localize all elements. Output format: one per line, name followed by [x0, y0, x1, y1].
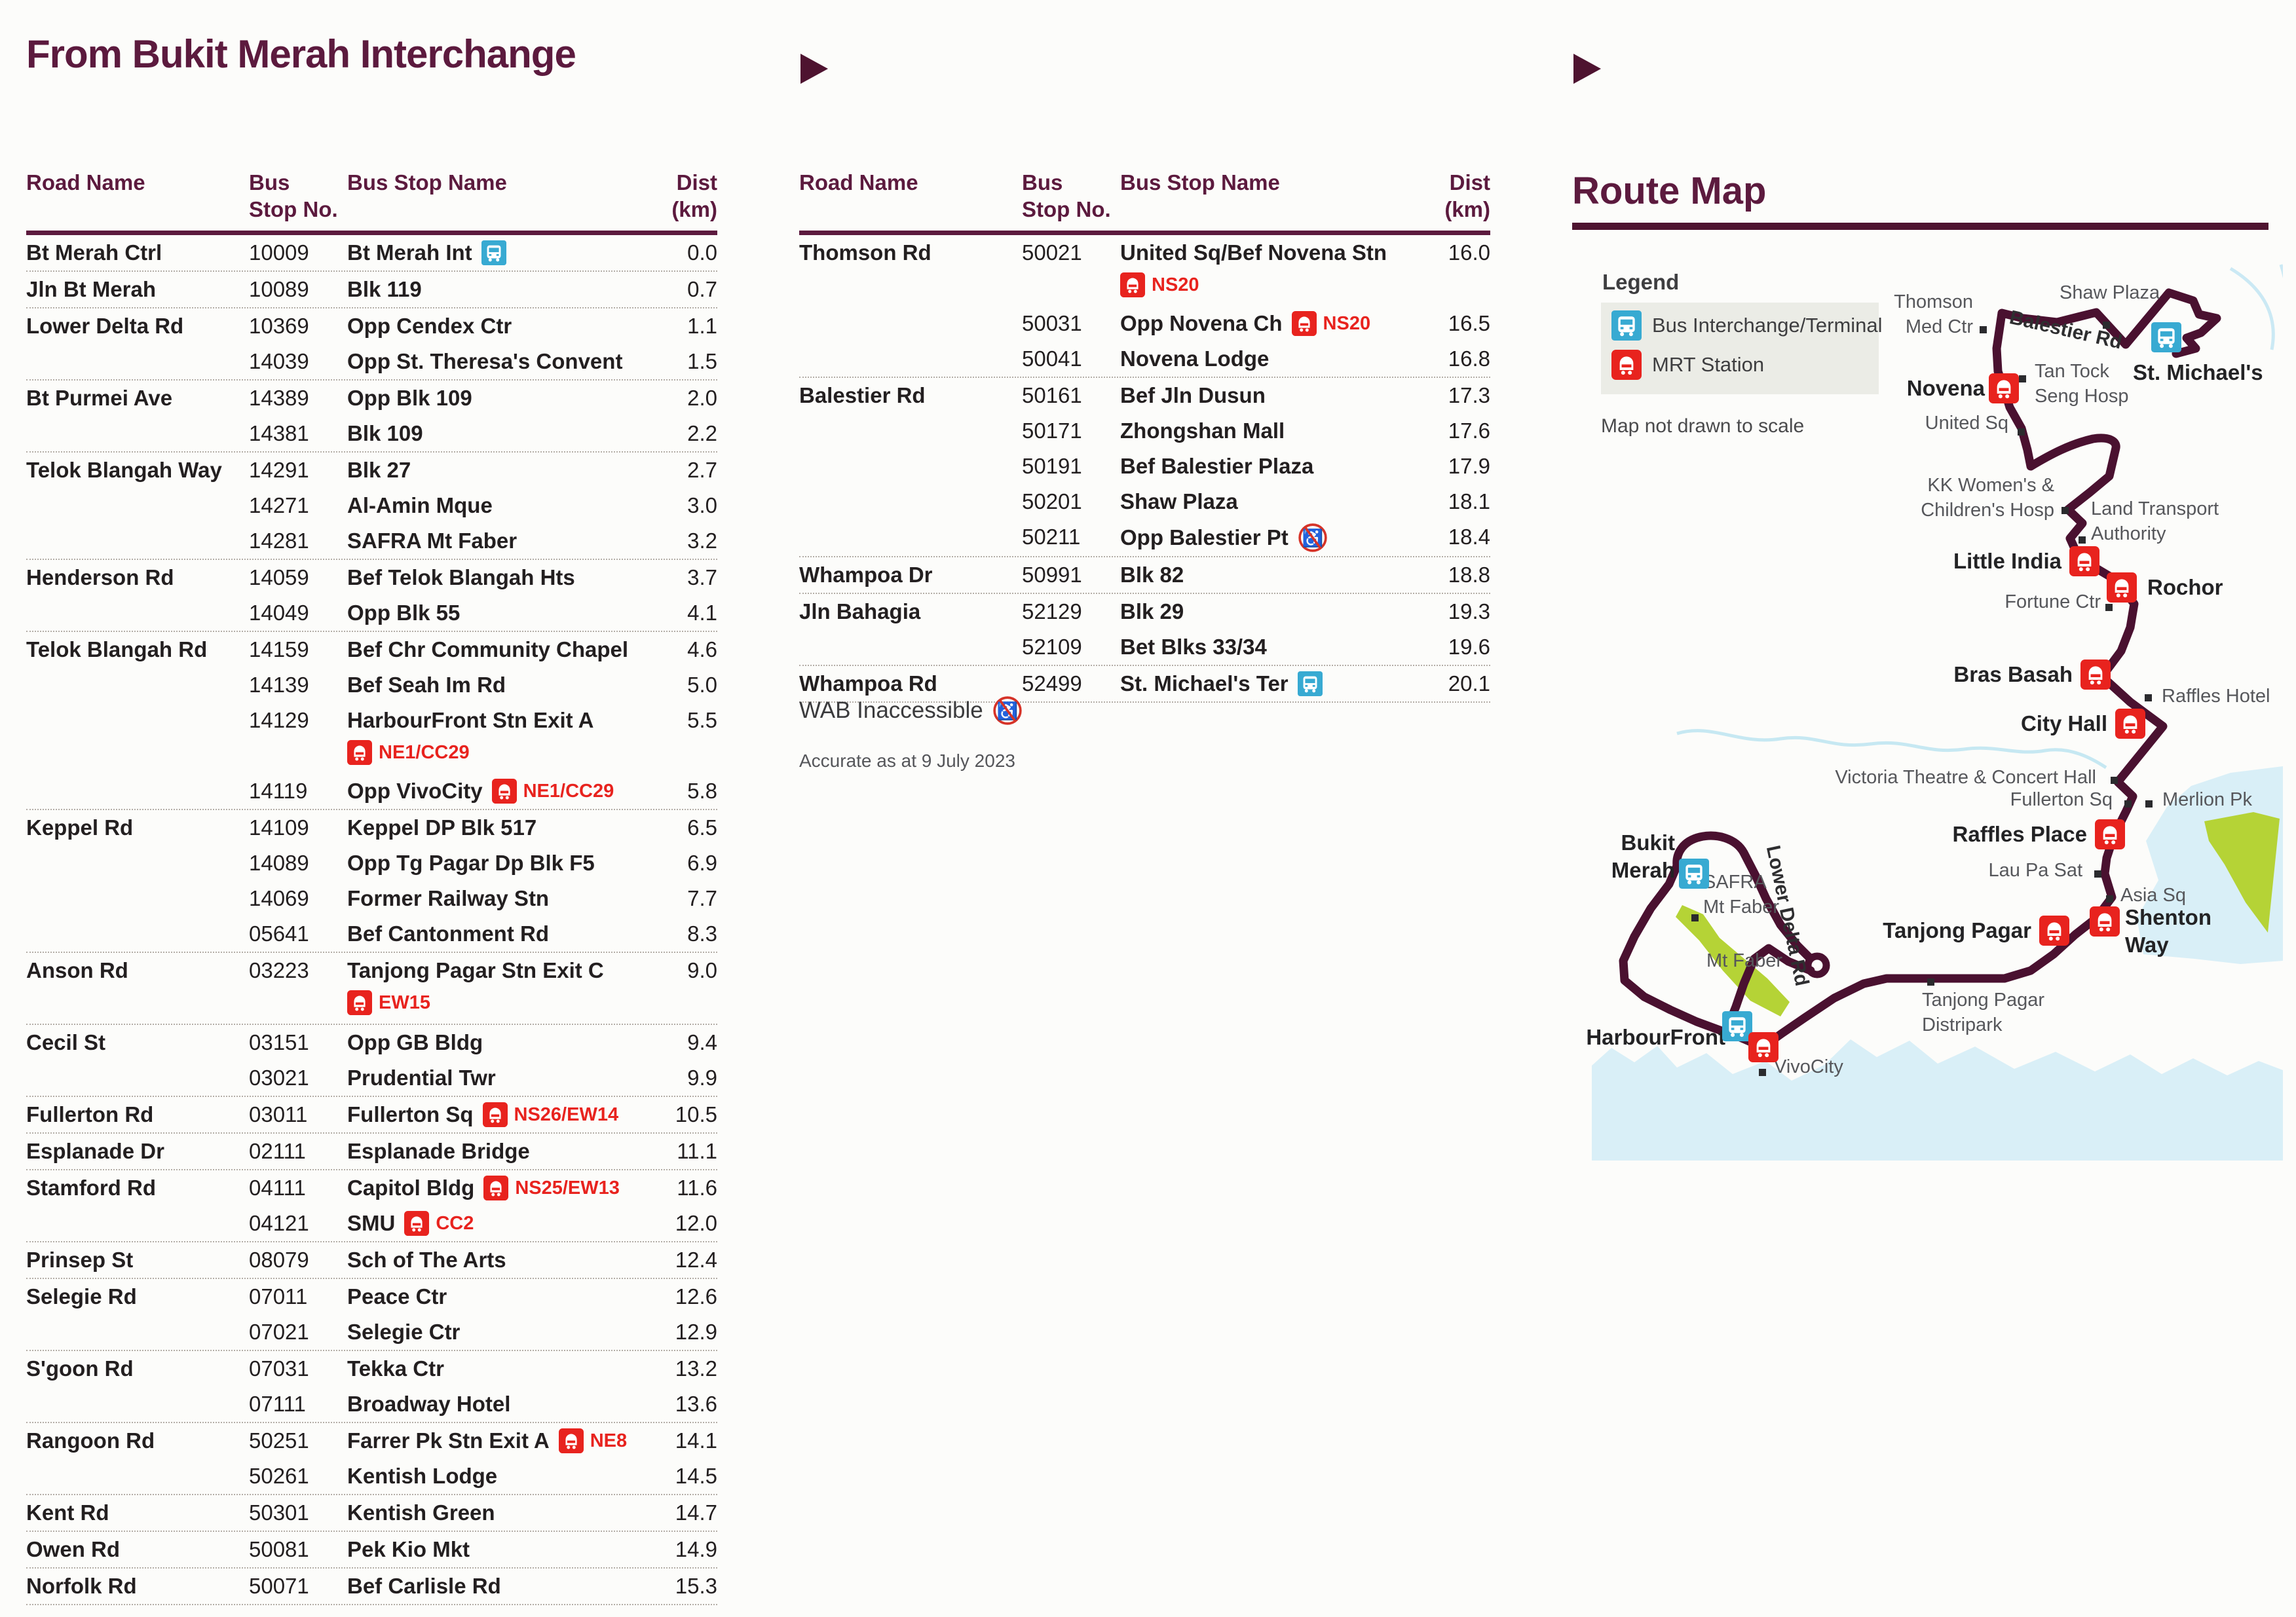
- bus-stop-name-cell: Opp Tg Pagar Dp Blk F5: [347, 849, 655, 878]
- bus-stop-name-cell: Blk 82: [1120, 561, 1428, 589]
- distance-cell: 10.5: [655, 1100, 717, 1129]
- bus-stop-no-cell: 52499: [1022, 669, 1120, 698]
- bus-stop-name-cell: Bef Carlisle Rd: [347, 1572, 655, 1601]
- label-line: Tan Tock: [2035, 359, 2129, 384]
- distance-cell: 15.3: [655, 1572, 717, 1601]
- bus-interchange-icon: [1298, 671, 1323, 696]
- bus-stop-name-cell: Blk 27: [347, 456, 655, 485]
- distance-cell: 5.8: [655, 777, 717, 806]
- bus-stop-name-cell: Bef Jln Dusun: [1120, 381, 1428, 410]
- label-line: Way: [2125, 931, 2211, 959]
- bus-stop-name: Opp Cendex Ctr: [347, 312, 512, 341]
- header-road-name: Road Name: [799, 169, 1022, 223]
- label-line: United Sq: [1925, 411, 2008, 436]
- bus-stop-no-cell: 14119: [249, 777, 347, 806]
- bus-stop-name-cell: Tekka Ctr: [347, 1354, 655, 1383]
- bus-stop-no-cell: 03021: [249, 1064, 347, 1092]
- table-row: Stamford Rd04111Capitol BldgNS25/EW1311.…: [26, 1170, 717, 1206]
- bus-stop-name: Shaw Plaza: [1120, 487, 1238, 516]
- bus-stop-name: Kentish Lodge: [347, 1462, 497, 1491]
- map-poi-label: Merlion Pk: [2162, 787, 2252, 812]
- bus-stop-no-cell: 04111: [249, 1174, 347, 1202]
- map-station-label: City Hall: [2021, 710, 2107, 737]
- bus-stop-name-cell: Novena Lodge: [1120, 344, 1428, 373]
- distance-cell: 14.5: [655, 1462, 717, 1491]
- bus-stop-name-cell: Capitol BldgNS25/EW13: [347, 1174, 655, 1202]
- bus-stop-name: Bt Merah Int: [347, 238, 472, 267]
- bus-stop-name: Broadway Hotel: [347, 1390, 510, 1419]
- bus-stop-no-cell: 14159: [249, 635, 347, 664]
- bus-stop-table-1: Road Name BusStop No. Bus Stop Name Dist…: [26, 169, 717, 1605]
- bus-stop-name: SAFRA Mt Faber: [347, 527, 517, 555]
- map-station-label: HarbourFront: [1586, 1024, 1725, 1051]
- distance-cell: 9.4: [655, 1028, 717, 1057]
- bus-stop-name-cell: HarbourFront Stn Exit ANE1/CC29: [347, 706, 655, 770]
- bus-stop-name-cell: Kentish Lodge: [347, 1462, 655, 1491]
- map-station-label: ShentonWay: [2125, 904, 2211, 959]
- bus-stop-name: Bef Balestier Plaza: [1120, 452, 1313, 481]
- bus-stop-no-cell: 14291: [249, 456, 347, 485]
- table-row: 50171Zhongshan Mall17.6: [799, 413, 1490, 449]
- road-name-cell: Bt Merah Ctrl: [26, 238, 249, 267]
- poi-marker: [2124, 800, 2132, 808]
- distance-cell: 9.0: [655, 956, 717, 985]
- bus-interchange-icon: [481, 240, 506, 265]
- bus-stop-table-2: Road Name BusStop No. Bus Stop Name Dist…: [799, 169, 1490, 703]
- road-name-cell: Esplanade Dr: [26, 1137, 249, 1166]
- label-line: Tanjong Pagar: [1922, 988, 2044, 1013]
- bus-stop-name-cell: Opp St. Theresa's Convent: [347, 347, 655, 376]
- distance-cell: 20.1: [1428, 669, 1490, 698]
- road-group: Selegie Rd07011Peace Ctr12.607021Selegie…: [26, 1279, 717, 1351]
- map-poi-label: Tan TockSeng Hosp: [2035, 359, 2129, 409]
- bus-stop-name-cell: Bef Seah Im Rd: [347, 671, 655, 699]
- bus-stop-no-cell: 07111: [249, 1390, 347, 1419]
- map-poi-label: Mt Faber: [1706, 948, 1782, 973]
- road-group: Bt Merah Ctrl10009Bt Merah Int0.0: [26, 235, 717, 272]
- table-row: 14381Blk 1092.2: [26, 416, 717, 451]
- poi-marker: [2111, 777, 2118, 784]
- table-row: Prinsep St08079Sch of The Arts12.4: [26, 1242, 717, 1278]
- distance-cell: 1.5: [655, 347, 717, 376]
- road-group: Bt Purmei Ave14389Opp Blk 1092.014381Blk…: [26, 381, 717, 453]
- road-name-cell: Cecil St: [26, 1028, 249, 1057]
- bus-stop-name-cell: Zhongshan Mall: [1120, 417, 1428, 445]
- mrt-badge: EW15: [347, 990, 430, 1015]
- bus-stop-name: Novena Lodge: [1120, 344, 1269, 373]
- mrt-station-icon: [2115, 709, 2145, 739]
- bus-stop-name-cell: Opp Blk 55: [347, 599, 655, 627]
- distance-cell: 5.0: [655, 671, 717, 699]
- bus-stop-name-cell: Bef Chr Community Chapel: [347, 635, 655, 664]
- bus-stop-no-cell: 14049: [249, 599, 347, 627]
- bus-stop-name-cell: Prudential Twr: [347, 1064, 655, 1092]
- bus-stop-name: Kentish Green: [347, 1498, 495, 1527]
- table-row: 14129HarbourFront Stn Exit ANE1/CC295.5: [26, 703, 717, 773]
- bus-stop-name: Bef Carlisle Rd: [347, 1572, 501, 1601]
- bus-stop-name: Bef Cantonment Rd: [347, 920, 549, 948]
- bus-stop-no-cell: 50211: [1022, 523, 1120, 551]
- road-name-cell: Telok Blangah Rd: [26, 635, 249, 664]
- accuracy-note: Accurate as at 9 July 2023: [799, 751, 1015, 771]
- bus-stop-name-cell: Esplanade Bridge: [347, 1137, 655, 1166]
- bus-stop-name: Bef Seah Im Rd: [347, 671, 506, 699]
- bus-stop-no-cell: 10089: [249, 275, 347, 304]
- continuation-arrow-icon: [800, 54, 828, 84]
- distance-cell: 16.0: [1428, 238, 1490, 267]
- wab-inaccessible-icon: ♿: [1298, 523, 1328, 553]
- table-row: 50031Opp Novena ChNS2016.5: [799, 306, 1490, 341]
- bus-stop-no-cell: 50021: [1022, 238, 1120, 267]
- header-bus-stop-name: Bus Stop Name: [347, 169, 655, 223]
- distance-cell: 14.9: [655, 1535, 717, 1564]
- label-line: Distripark: [1922, 1013, 2044, 1037]
- mrt-line-code: NE1/CC29: [379, 740, 470, 765]
- label-line: HarbourFront: [1586, 1024, 1725, 1051]
- poi-marker: [2106, 895, 2113, 902]
- poi-marker: [1691, 914, 1699, 921]
- road-name-cell: Henderson Rd: [26, 563, 249, 592]
- label-line: Fortune Ctr: [2004, 589, 2101, 614]
- label-line: City Hall: [2021, 710, 2107, 737]
- bus-stop-name: Prudential Twr: [347, 1064, 496, 1092]
- header-bus-stop-name: Bus Stop Name: [1120, 169, 1428, 223]
- distance-cell: 13.2: [655, 1354, 717, 1383]
- label-line: VivoCity: [1774, 1054, 1843, 1079]
- bus-stop-no-cell: 14059: [249, 563, 347, 592]
- page-title: From Bukit Merah Interchange: [26, 31, 576, 77]
- bus-stop-name-cell: Bef Balestier Plaza: [1120, 452, 1428, 481]
- distance-cell: 18.8: [1428, 561, 1490, 589]
- bus-interchange-icon: [2151, 322, 2181, 352]
- poi-marker: [2019, 375, 2026, 382]
- label-line: Merlion Pk: [2162, 787, 2252, 812]
- table-row: Balestier Rd50161Bef Jln Dusun17.3: [799, 378, 1490, 413]
- mrt-station-icon: [483, 1176, 508, 1200]
- distance-cell: 9.9: [655, 1064, 717, 1092]
- mrt-station-icon: [2080, 660, 2111, 690]
- header-dist: Dist(km): [655, 169, 717, 223]
- bus-stop-no-cell: 14039: [249, 347, 347, 376]
- badge-line: NE1/CC29: [347, 736, 646, 769]
- distance-cell: 2.7: [655, 456, 717, 485]
- bus-stop-no-cell: 02111: [249, 1137, 347, 1166]
- distance-cell: 19.6: [1428, 633, 1490, 661]
- table-row: Henderson Rd14059Bef Telok Blangah Hts3.…: [26, 560, 717, 595]
- map-station-label: St. Michael's: [2133, 359, 2263, 386]
- table-row: 14089Opp Tg Pagar Dp Blk F56.9: [26, 846, 717, 881]
- mrt-station-icon: [347, 990, 372, 1015]
- bus-stop-name-cell: Former Railway Stn: [347, 884, 655, 913]
- bus-stop-name: Peace Ctr: [347, 1282, 447, 1311]
- road-group: Keppel Rd14109Keppel DP Blk 5176.514089O…: [26, 810, 717, 953]
- bus-stop-name: Blk 27: [347, 456, 411, 485]
- distance-cell: 11.1: [655, 1137, 717, 1166]
- label-line: Children's Hosp: [1921, 498, 2054, 523]
- distance-cell: 12.0: [655, 1209, 717, 1238]
- bus-stop-name-cell: Keppel DP Blk 517: [347, 813, 655, 842]
- bus-stop-name-cell: Shaw Plaza: [1120, 487, 1428, 516]
- mrt-badge: NS26/EW14: [483, 1102, 619, 1127]
- bus-stop-name-cell: Blk 29: [1120, 597, 1428, 626]
- distance-cell: 4.6: [655, 635, 717, 664]
- table-row: Norfolk Rd50071Bef Carlisle Rd15.3: [26, 1569, 717, 1604]
- continuation-arrow-icon: [1573, 54, 1601, 84]
- mrt-station-icon: [2090, 906, 2120, 937]
- map-station-label: Raffles Place: [1953, 821, 2087, 848]
- label-line: Fullerton Sq: [2010, 787, 2113, 812]
- road-name-cell: Thomson Rd: [799, 238, 1022, 267]
- distance-cell: 0.0: [655, 238, 717, 267]
- table-row: Bt Merah Ctrl10009Bt Merah Int0.0: [26, 235, 717, 270]
- road-group: Kent Rd50301Kentish Green14.7: [26, 1495, 717, 1532]
- bus-stop-no-cell: 10369: [249, 312, 347, 341]
- label-line: KK Women's &: [1921, 473, 2054, 498]
- table-row: Fullerton Rd03011Fullerton SqNS26/EW1410…: [26, 1097, 717, 1132]
- road-group: Lower Delta Rd10369Opp Cendex Ctr1.11403…: [26, 308, 717, 381]
- mrt-badge: NS25/EW13: [483, 1176, 620, 1200]
- map-station-label: Bras Basah: [1953, 661, 2073, 688]
- bus-stop-name: Selegie Ctr: [347, 1318, 460, 1347]
- table-row: 14069Former Railway Stn7.7: [26, 881, 717, 916]
- mrt-badge: NE8: [559, 1428, 627, 1453]
- map-poi-label: ThomsonMed Ctr: [1894, 289, 1973, 339]
- bus-stop-name-cell: Kentish Green: [347, 1498, 655, 1527]
- bus-stop-no-cell: 50261: [249, 1462, 347, 1491]
- mrt-station-icon: [559, 1428, 584, 1453]
- table-row: Whampoa Dr50991Blk 8218.8: [799, 557, 1490, 593]
- road-group: Norfolk Rd50071Bef Carlisle Rd15.3: [26, 1569, 717, 1605]
- distance-cell: 17.6: [1428, 417, 1490, 445]
- mrt-badge: NS20: [1292, 311, 1371, 336]
- bus-stop-no-cell: 03151: [249, 1028, 347, 1057]
- road-group: Stamford Rd04111Capitol BldgNS25/EW1311.…: [26, 1170, 717, 1242]
- bus-stop-name: Tanjong Pagar Stn Exit C: [347, 956, 604, 985]
- distance-cell: 12.6: [655, 1282, 717, 1311]
- map-station-label: Tanjong Pagar: [1883, 917, 2031, 944]
- road-name-cell: Anson Rd: [26, 956, 249, 985]
- bus-stop-no-cell: 03011: [249, 1100, 347, 1129]
- bus-stop-no-cell: 50161: [1022, 381, 1120, 410]
- bus-stop-name: Blk 82: [1120, 561, 1184, 589]
- distance-cell: 12.4: [655, 1246, 717, 1274]
- bus-stop-name-cell: Opp GB Bldg: [347, 1028, 655, 1057]
- bus-stop-no-cell: 50301: [249, 1498, 347, 1527]
- bus-stop-no-cell: 50171: [1022, 417, 1120, 445]
- mrt-line-code: NS26/EW14: [514, 1102, 619, 1127]
- bus-stop-name: Zhongshan Mall: [1120, 417, 1285, 445]
- road-name-cell: Balestier Rd: [799, 381, 1022, 410]
- road-group: Jln Bt Merah10089Blk 1190.7: [26, 272, 717, 308]
- bus-stop-name-cell: Sch of The Arts: [347, 1246, 655, 1274]
- bus-stop-name-cell: Tanjong Pagar Stn Exit CEW15: [347, 956, 655, 1020]
- road-group: Fullerton Rd03011Fullerton SqNS26/EW1410…: [26, 1097, 717, 1134]
- bus-stop-name: Opp Balestier Pt: [1120, 523, 1289, 552]
- header-bus-stop-no: BusStop No.: [249, 169, 347, 223]
- mrt-station-icon: [1292, 311, 1317, 336]
- label-line: Authority: [2091, 521, 2219, 546]
- table-row: 14119Opp VivoCityNE1/CC295.8: [26, 773, 717, 809]
- bus-stop-name: Opp Tg Pagar Dp Blk F5: [347, 849, 595, 878]
- bus-stop-no-cell: 50071: [249, 1572, 347, 1601]
- bus-stop-name: Capitol Bldg: [347, 1174, 474, 1202]
- road-name-cell: Owen Rd: [26, 1535, 249, 1564]
- distance-cell: 12.9: [655, 1318, 717, 1347]
- bus-stop-name-cell: Al-Amin Mque: [347, 491, 655, 520]
- distance-cell: 18.4: [1428, 523, 1490, 551]
- bus-stop-name: Bef Jln Dusun: [1120, 381, 1266, 410]
- bus-stop-no-cell: 52109: [1022, 633, 1120, 661]
- distance-cell: 16.8: [1428, 344, 1490, 373]
- bus-stop-name-cell: Opp Balestier Pt♿: [1120, 523, 1428, 553]
- distance-cell: 18.1: [1428, 487, 1490, 516]
- table-row: 07111Broadway Hotel13.6: [26, 1386, 717, 1422]
- distance-cell: 0.7: [655, 275, 717, 304]
- table-header: Road Name BusStop No. Bus Stop Name Dist…: [799, 169, 1490, 235]
- mrt-line-code: NS25/EW13: [515, 1176, 620, 1200]
- mrt-badge: CC2: [404, 1211, 474, 1236]
- poi-marker: [2018, 428, 2025, 436]
- map-road-label: Balestier Rd: [2007, 307, 2124, 354]
- bus-stop-name: Opp Blk 109: [347, 384, 472, 413]
- mrt-badge: NE1/CC29: [492, 779, 614, 804]
- bus-stop-name-cell: Opp Cendex Ctr: [347, 312, 655, 341]
- distance-cell: 19.3: [1428, 597, 1490, 626]
- bus-stop-no-cell: 14281: [249, 527, 347, 555]
- table-row: Thomson Rd50021United Sq/Bef Novena StnN…: [799, 235, 1490, 306]
- bus-stop-no-cell: 50251: [249, 1426, 347, 1455]
- route-map-title: Route Map: [1572, 169, 1766, 213]
- table-row: Telok Blangah Way14291Blk 272.7: [26, 453, 717, 488]
- road-name-cell: Bt Purmei Ave: [26, 384, 249, 413]
- label-line: Thomson: [1894, 289, 1973, 314]
- road-name-cell: Lower Delta Rd: [26, 312, 249, 341]
- road-group: Prinsep St08079Sch of The Arts12.4: [26, 1242, 717, 1279]
- bus-stop-name: Blk 109: [347, 419, 423, 448]
- table-row: 50211Opp Balestier Pt♿18.4: [799, 519, 1490, 556]
- table-row: S'goon Rd07031Tekka Ctr13.2: [26, 1351, 717, 1386]
- distance-cell: 8.3: [655, 920, 717, 948]
- distance-cell: 2.2: [655, 419, 717, 448]
- bus-stop-no-cell: 52129: [1022, 597, 1120, 626]
- bus-stop-name-cell: Bef Telok Blangah Hts: [347, 563, 655, 592]
- bus-stop-name: Bef Chr Community Chapel: [347, 635, 628, 664]
- map-poi-label: Land TransportAuthority: [2091, 496, 2219, 546]
- bus-stop-no-cell: 07011: [249, 1282, 347, 1311]
- bus-stop-no-cell: 04121: [249, 1209, 347, 1238]
- map-station-label: BukitMerah: [1611, 829, 1675, 884]
- bus-stop-no-cell: 03223: [249, 956, 347, 985]
- table-row: 50191Bef Balestier Plaza17.9: [799, 449, 1490, 484]
- wab-inaccessible-icon: ♿: [992, 696, 1023, 726]
- distance-cell: 13.6: [655, 1390, 717, 1419]
- mrt-station-icon: [404, 1211, 429, 1236]
- bus-stop-name: Opp Novena Ch: [1120, 309, 1283, 338]
- badge-line: EW15: [347, 986, 646, 1019]
- bus-stop-no-cell: 50201: [1022, 487, 1120, 516]
- label-line: Bras Basah: [1953, 661, 2073, 688]
- table-row: 14281SAFRA Mt Faber3.2: [26, 523, 717, 559]
- label-line: Shaw Plaza: [2060, 280, 2160, 305]
- map-poi-label: Shaw Plaza: [2060, 280, 2160, 305]
- map-poi-label: Raffles Hotel: [2162, 684, 2270, 709]
- label-line: Mt Faber: [1703, 895, 1779, 920]
- bus-stop-name-cell: Bet Blks 33/34: [1120, 633, 1428, 661]
- table-row: Kent Rd50301Kentish Green14.7: [26, 1495, 717, 1531]
- bus-stop-name: Sch of The Arts: [347, 1246, 506, 1274]
- bus-stop-name-cell: Opp Novena ChNS20: [1120, 309, 1428, 338]
- label-line: Mt Faber: [1706, 948, 1782, 973]
- bus-stop-name: Bet Blks 33/34: [1120, 633, 1267, 661]
- table-row: Owen Rd50081Pek Kio Mkt14.9: [26, 1532, 717, 1567]
- road-group: Telok Blangah Way14291Blk 272.714271Al-A…: [26, 453, 717, 560]
- mrt-station-icon: [2107, 572, 2137, 603]
- mrt-line-code: NS20: [1323, 311, 1371, 336]
- distance-cell: 1.1: [655, 312, 717, 341]
- bus-stop-name: Opp VivoCity: [347, 777, 483, 806]
- poi-marker: [2061, 507, 2069, 514]
- bus-stop-name-cell: Selegie Ctr: [347, 1318, 655, 1347]
- table-row: 50261Kentish Lodge14.5: [26, 1459, 717, 1494]
- poi-marker: [2145, 800, 2153, 808]
- road-group: Owen Rd50081Pek Kio Mkt14.9: [26, 1532, 717, 1569]
- mrt-badge: NS20: [1120, 272, 1199, 297]
- bus-stop-name-cell: Blk 109: [347, 419, 655, 448]
- table-row: Lower Delta Rd10369Opp Cendex Ctr1.1: [26, 308, 717, 344]
- bus-stop-name-cell: United Sq/Bef Novena StnNS20: [1120, 238, 1428, 303]
- map-poi-label: Victoria Theatre & Concert Hall: [1835, 765, 2096, 790]
- bus-stop-no-cell: 14089: [249, 849, 347, 878]
- bus-stop-name: Former Railway Stn: [347, 884, 549, 913]
- bus-stop-no-cell: 50041: [1022, 344, 1120, 373]
- label-line: Land Transport: [2091, 496, 2219, 521]
- poi-marker: [2105, 604, 2113, 611]
- map-poi-label: VivoCity: [1774, 1054, 1843, 1079]
- bus-stop-name-cell: Opp VivoCityNE1/CC29: [347, 777, 655, 806]
- map-poi-label: Fullerton Sq: [2010, 787, 2113, 812]
- header-dist: Dist(km): [1428, 169, 1490, 223]
- label-line: Lau Pa Sat: [1989, 858, 2083, 883]
- distance-cell: 6.5: [655, 813, 717, 842]
- map-poi-label: United Sq: [1925, 411, 2008, 436]
- distance-cell: 2.0: [655, 384, 717, 413]
- bus-stop-no-cell: 50081: [249, 1535, 347, 1564]
- mrt-station-icon: [1120, 272, 1145, 297]
- road-name-cell: Rangoon Rd: [26, 1426, 249, 1455]
- bus-stop-name: St. Michael's Ter: [1120, 669, 1289, 698]
- map-poi-label: Lau Pa Sat: [1989, 858, 2083, 883]
- map-poi-label: KK Women's &Children's Hosp: [1921, 473, 2054, 523]
- bus-stop-name: Opp GB Bldg: [347, 1028, 483, 1057]
- bus-stop-name-cell: Bef Cantonment Rd: [347, 920, 655, 948]
- road-group: Rangoon Rd50251Farrer Pk Stn Exit ANE814…: [26, 1423, 717, 1495]
- table-row: Anson Rd03223Tanjong Pagar Stn Exit CEW1…: [26, 953, 717, 1024]
- bus-stop-name-cell: Farrer Pk Stn Exit ANE8: [347, 1426, 655, 1455]
- distance-cell: 11.6: [655, 1174, 717, 1202]
- bus-stop-no-cell: 14109: [249, 813, 347, 842]
- road-group: Thomson Rd50021United Sq/Bef Novena StnN…: [799, 235, 1490, 378]
- distance-cell: 14.7: [655, 1498, 717, 1527]
- poi-marker: [1980, 326, 1987, 333]
- map-station-label: Novena: [1907, 375, 1985, 402]
- bus-stop-name-cell: Opp Blk 109: [347, 384, 655, 413]
- mrt-line-code: EW15: [379, 990, 430, 1015]
- poi-marker: [2145, 694, 2152, 701]
- route-map: Legend Bus Interchange/Terminal MRT Stat…: [1572, 250, 2283, 1180]
- road-name-cell: Telok Blangah Way: [26, 456, 249, 485]
- table-row: Telok Blangah Rd14159Bef Chr Community C…: [26, 632, 717, 667]
- distance-cell: 16.5: [1428, 309, 1490, 338]
